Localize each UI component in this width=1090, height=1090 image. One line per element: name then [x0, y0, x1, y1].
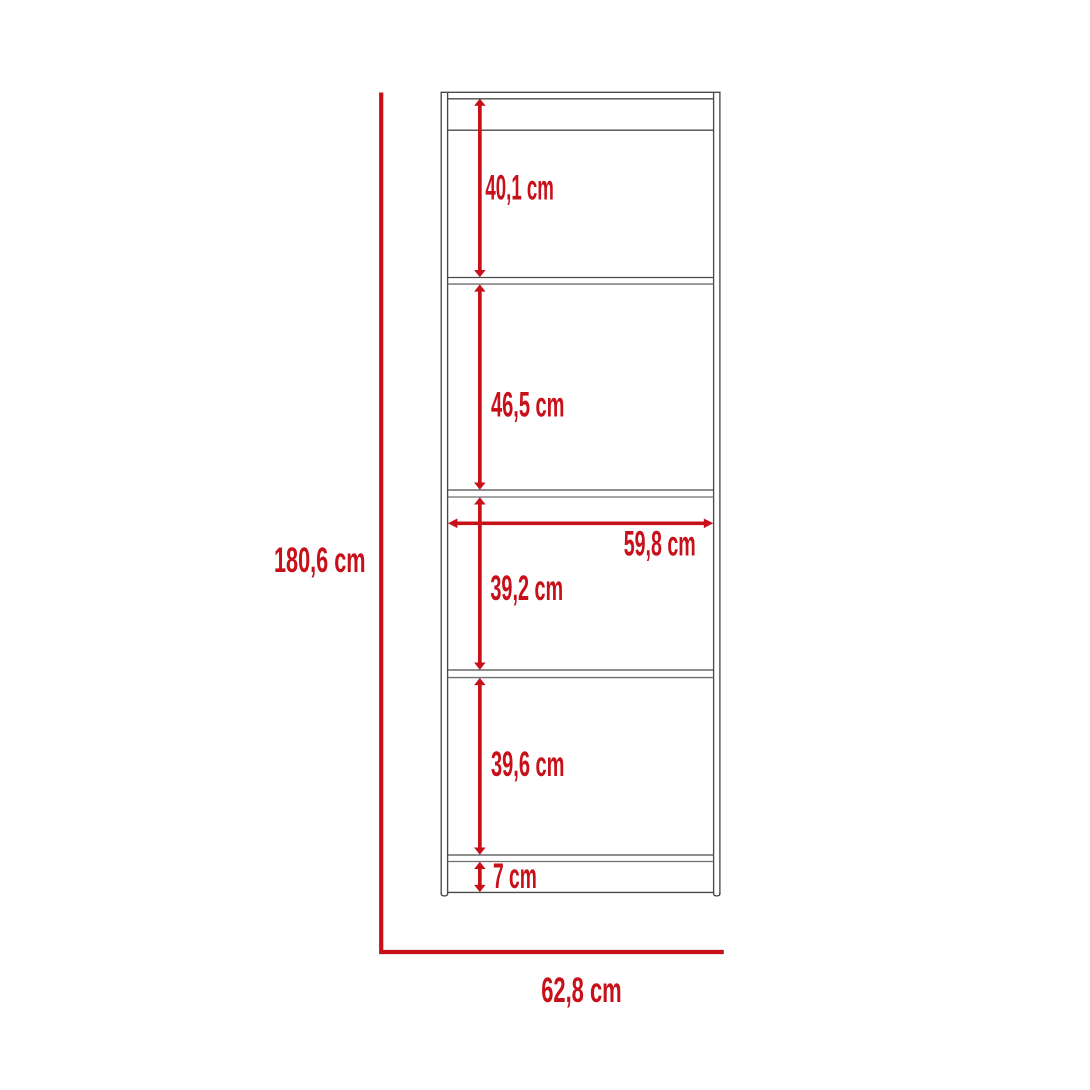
svg-text:46,5 cm: 46,5 cm: [491, 386, 565, 425]
svg-text:7 cm: 7 cm: [493, 857, 537, 896]
svg-text:180,6 cm: 180,6 cm: [274, 541, 366, 580]
svg-text:62,8 cm: 62,8 cm: [541, 971, 622, 1010]
svg-text:39,6 cm: 39,6 cm: [491, 745, 565, 784]
svg-text:40,1 cm: 40,1 cm: [485, 168, 554, 207]
svg-text:59,8 cm: 59,8 cm: [624, 524, 696, 563]
svg-text:39,2 cm: 39,2 cm: [490, 569, 563, 608]
